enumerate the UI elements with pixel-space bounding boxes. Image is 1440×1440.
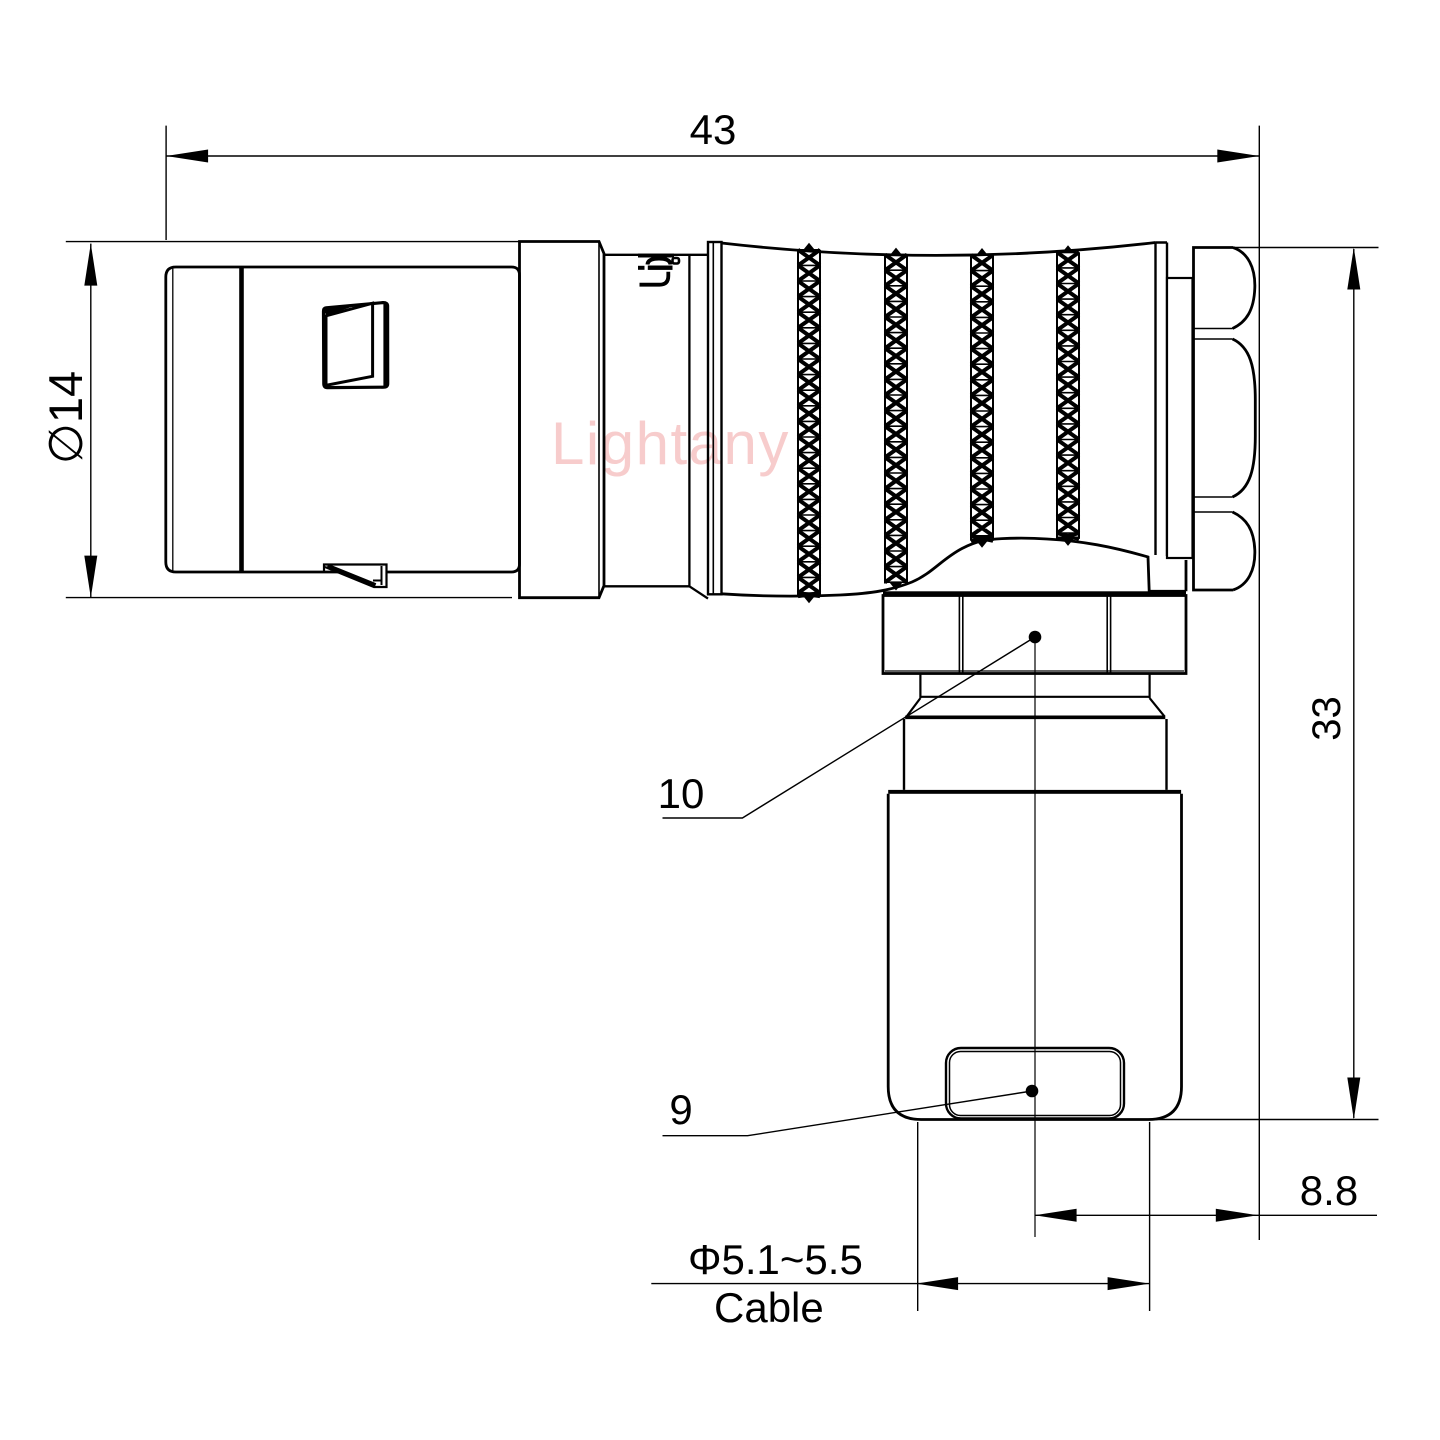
svg-text:Φ5.1~5.5: Φ5.1~5.5 [688,1236,863,1283]
svg-text:43: 43 [690,106,737,153]
svg-text:33: 33 [1305,696,1349,741]
svg-text:∅14: ∅14 [39,371,92,464]
svg-text:10: 10 [658,770,705,817]
svg-text:Cable: Cable [714,1284,824,1331]
svg-text:9: 9 [669,1086,692,1133]
svg-text:8.8: 8.8 [1300,1167,1358,1214]
svg-text:Lightany: Lightany [551,410,790,477]
